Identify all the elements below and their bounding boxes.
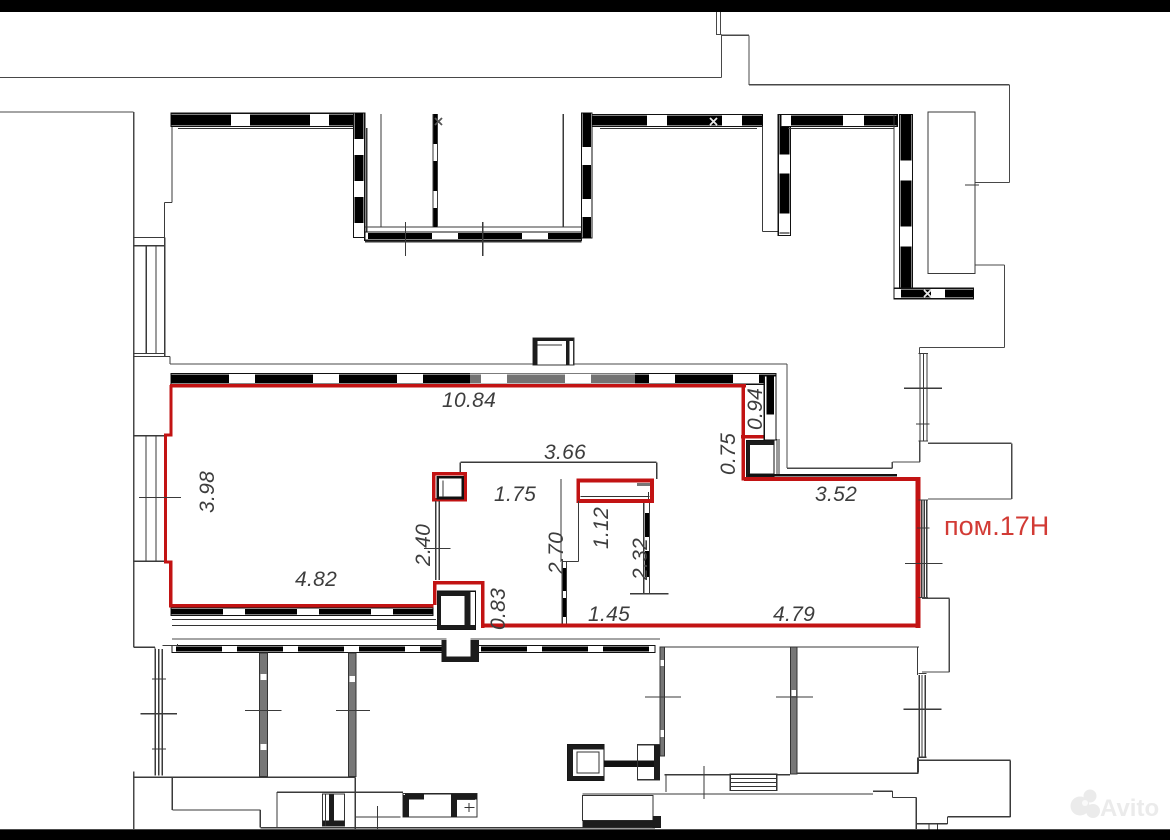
svg-text:0.83: 0.83 <box>487 588 510 630</box>
svg-text:3.52: 3.52 <box>815 483 857 506</box>
svg-text:Avito: Avito <box>1100 795 1159 822</box>
svg-text:2.70: 2.70 <box>545 532 568 575</box>
svg-text:3.98: 3.98 <box>196 471 219 513</box>
svg-text:0.75: 0.75 <box>717 433 740 475</box>
svg-text:2.32: 2.32 <box>629 538 652 581</box>
svg-text:0.94: 0.94 <box>744 388 767 430</box>
svg-text:пом.17Н: пом.17Н <box>944 511 1049 541</box>
svg-text:1.75: 1.75 <box>494 483 536 506</box>
svg-text:2.40: 2.40 <box>412 524 435 567</box>
svg-text:10.84: 10.84 <box>442 389 496 412</box>
svg-text:4.79: 4.79 <box>773 603 815 626</box>
svg-text:4.82: 4.82 <box>295 568 337 591</box>
svg-text:3.66: 3.66 <box>544 441 586 464</box>
svg-text:1.45: 1.45 <box>588 603 630 626</box>
svg-text:1.12: 1.12 <box>590 507 613 549</box>
